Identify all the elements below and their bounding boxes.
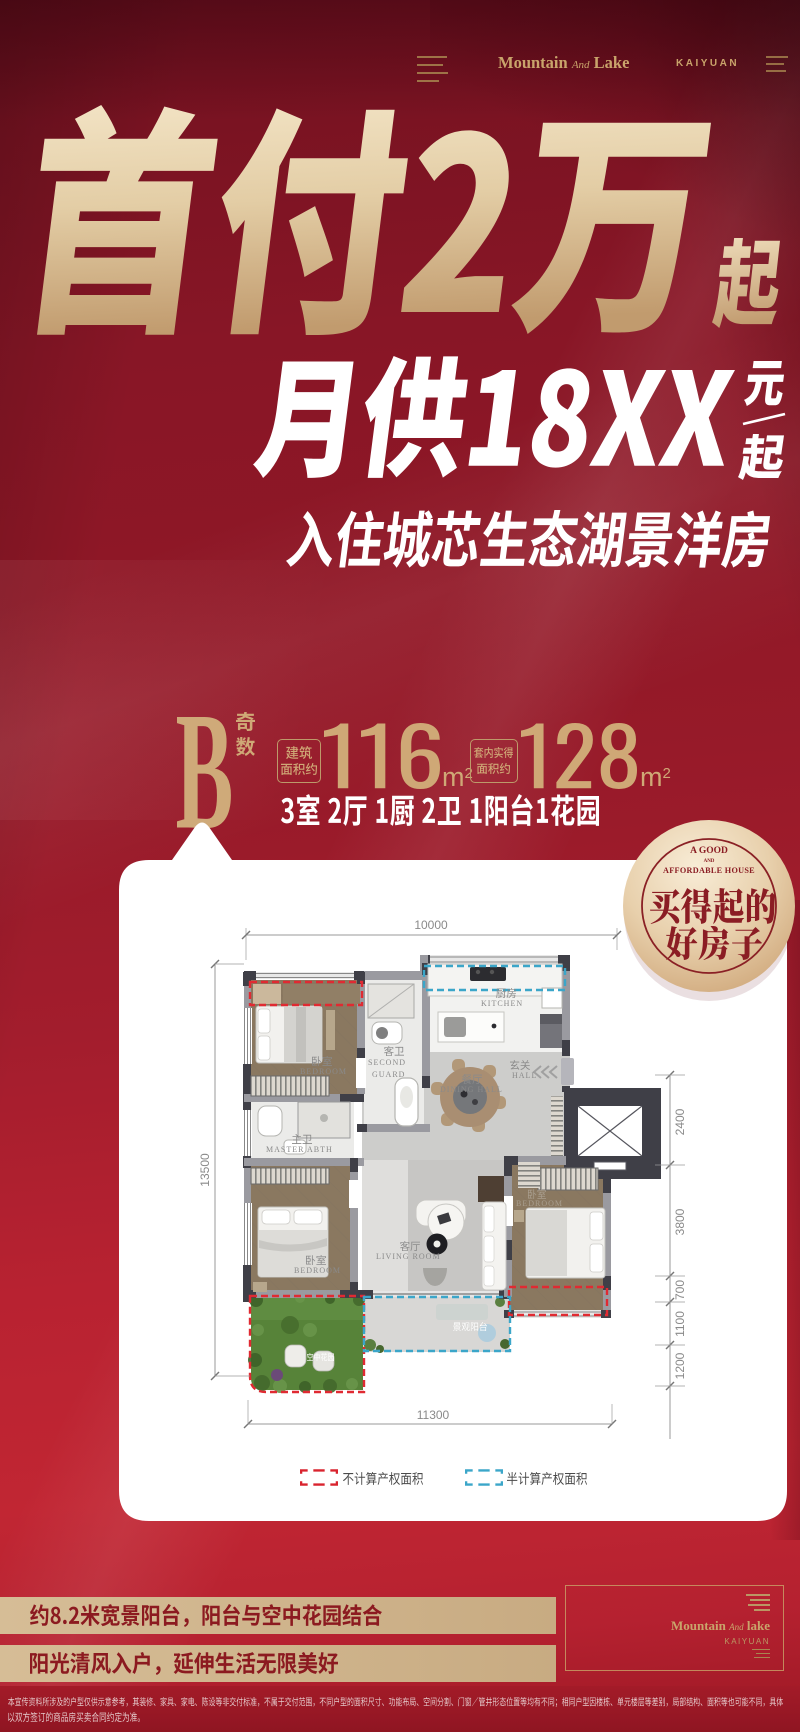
- svg-text:2400: 2400: [673, 1108, 687, 1135]
- svg-text:11300: 11300: [417, 1408, 450, 1422]
- svg-text:13500: 13500: [198, 1153, 212, 1187]
- svg-text:1200: 1200: [673, 1352, 687, 1379]
- svg-text:1100: 1100: [673, 1311, 687, 1337]
- svg-text:3800: 3800: [673, 1208, 687, 1235]
- svg-text:10000: 10000: [414, 918, 448, 932]
- svg-text:700: 700: [673, 1280, 687, 1300]
